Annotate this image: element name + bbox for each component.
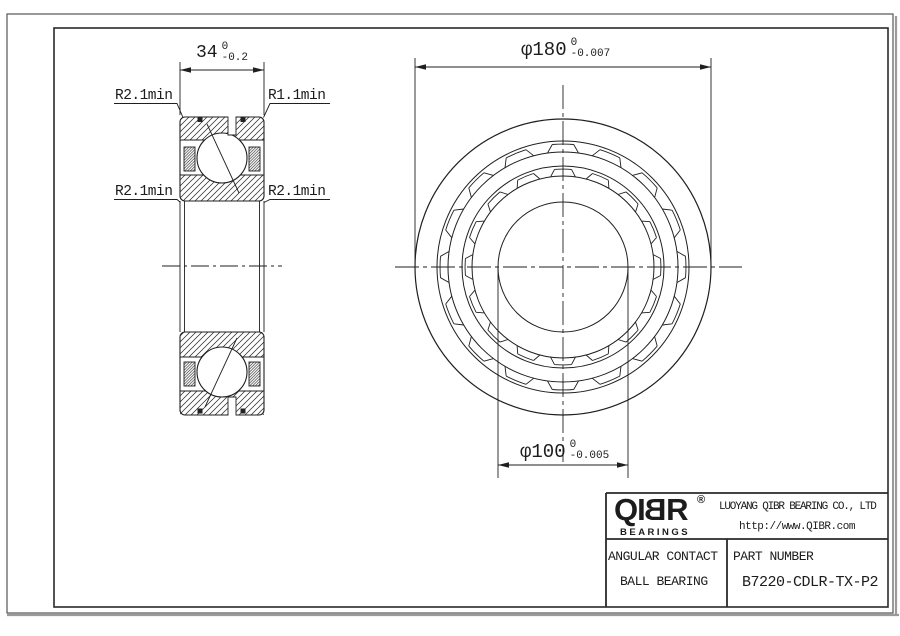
front-view — [395, 58, 742, 478]
width-dimension-lines — [180, 62, 264, 115]
cage-pocket — [633, 173, 658, 198]
bore-tolerance: 0-0.005 — [570, 440, 610, 461]
ball-bottom — [197, 347, 247, 397]
width-tol-lower: -0.2 — [222, 53, 248, 64]
company-logo: QIBR — [614, 495, 688, 525]
cage-left — [184, 147, 195, 171]
logo-subtitle: BEARINGS — [620, 527, 690, 538]
od-tol-lower: -0.007 — [571, 49, 611, 60]
logo-mirrored-letter: B — [645, 495, 666, 525]
od-dimension-label: φ1800-0.007 — [521, 39, 610, 61]
cage-pocket — [469, 173, 494, 198]
od-tol-upper: 0 — [571, 38, 611, 49]
notch-bottom-right — [241, 409, 246, 414]
radius-label-mid-right: R2.1min — [268, 184, 325, 200]
bore-value: φ100 — [520, 441, 566, 463]
arrowhead-bore-left — [498, 462, 509, 467]
arrowhead-od-right — [700, 64, 711, 69]
cross-section-view — [114, 62, 330, 416]
logo-prefix: QI — [614, 492, 645, 527]
company-website: http://www.QIBR.com — [739, 521, 855, 533]
part-number-label: PART NUMBER — [733, 549, 813, 564]
cage-left-bottom — [184, 362, 195, 386]
cage-pocket — [469, 337, 494, 362]
arrowhead-left — [180, 67, 191, 72]
lube-slot-bottom-fill — [228, 397, 237, 417]
width-tolerance: 0-0.2 — [222, 42, 248, 63]
company-name: LUOYANG QIBR BEARING CO., LTD — [719, 501, 876, 513]
od-value: φ180 — [521, 39, 567, 61]
width-value: 34 — [196, 43, 218, 63]
od-tolerance: 0-0.007 — [571, 38, 611, 59]
bore-tol-upper: 0 — [570, 440, 610, 451]
part-number-value: B7220-CDLR-TX-P2 — [742, 574, 878, 591]
cage-pocket — [618, 192, 638, 212]
product-type-line1: ANGULAR CONTACT — [608, 549, 718, 564]
cage-pocket — [488, 192, 508, 212]
arrowhead-right — [253, 67, 264, 72]
cage-pocket — [633, 337, 658, 362]
width-dimension-label: 340-0.2 — [196, 43, 248, 64]
cage-right-bottom — [249, 362, 260, 386]
top-section — [180, 116, 264, 201]
registered-trademark-icon: ® — [697, 494, 705, 506]
radius-label-top-right: R1.1min — [268, 88, 325, 104]
logo-suffix: R — [666, 492, 687, 527]
notch-top-right — [241, 117, 246, 122]
arrowhead-od-left — [415, 64, 426, 69]
radius-label-top-left: R2.1min — [115, 88, 172, 104]
notch-bottom-left — [198, 409, 203, 414]
drawing-sheet: 340-0.2 φ1800-0.007 φ1000-0.005 R2.1min … — [0, 0, 900, 636]
bore-tol-lower: -0.005 — [570, 451, 610, 462]
ball-top — [197, 133, 247, 183]
bore-dimension-label: φ1000-0.005 — [520, 441, 609, 463]
notch-top-left — [198, 117, 203, 122]
product-type-line2: BALL BEARING — [620, 574, 708, 589]
bottom-section — [180, 332, 264, 416]
arrowhead-bore-right — [617, 462, 628, 467]
width-tol-upper: 0 — [222, 42, 248, 53]
cage-right — [249, 147, 260, 171]
side-face-lines — [180, 201, 264, 332]
lube-slot-top-fill — [228, 116, 237, 136]
radius-label-mid-left: R2.1min — [115, 184, 172, 200]
